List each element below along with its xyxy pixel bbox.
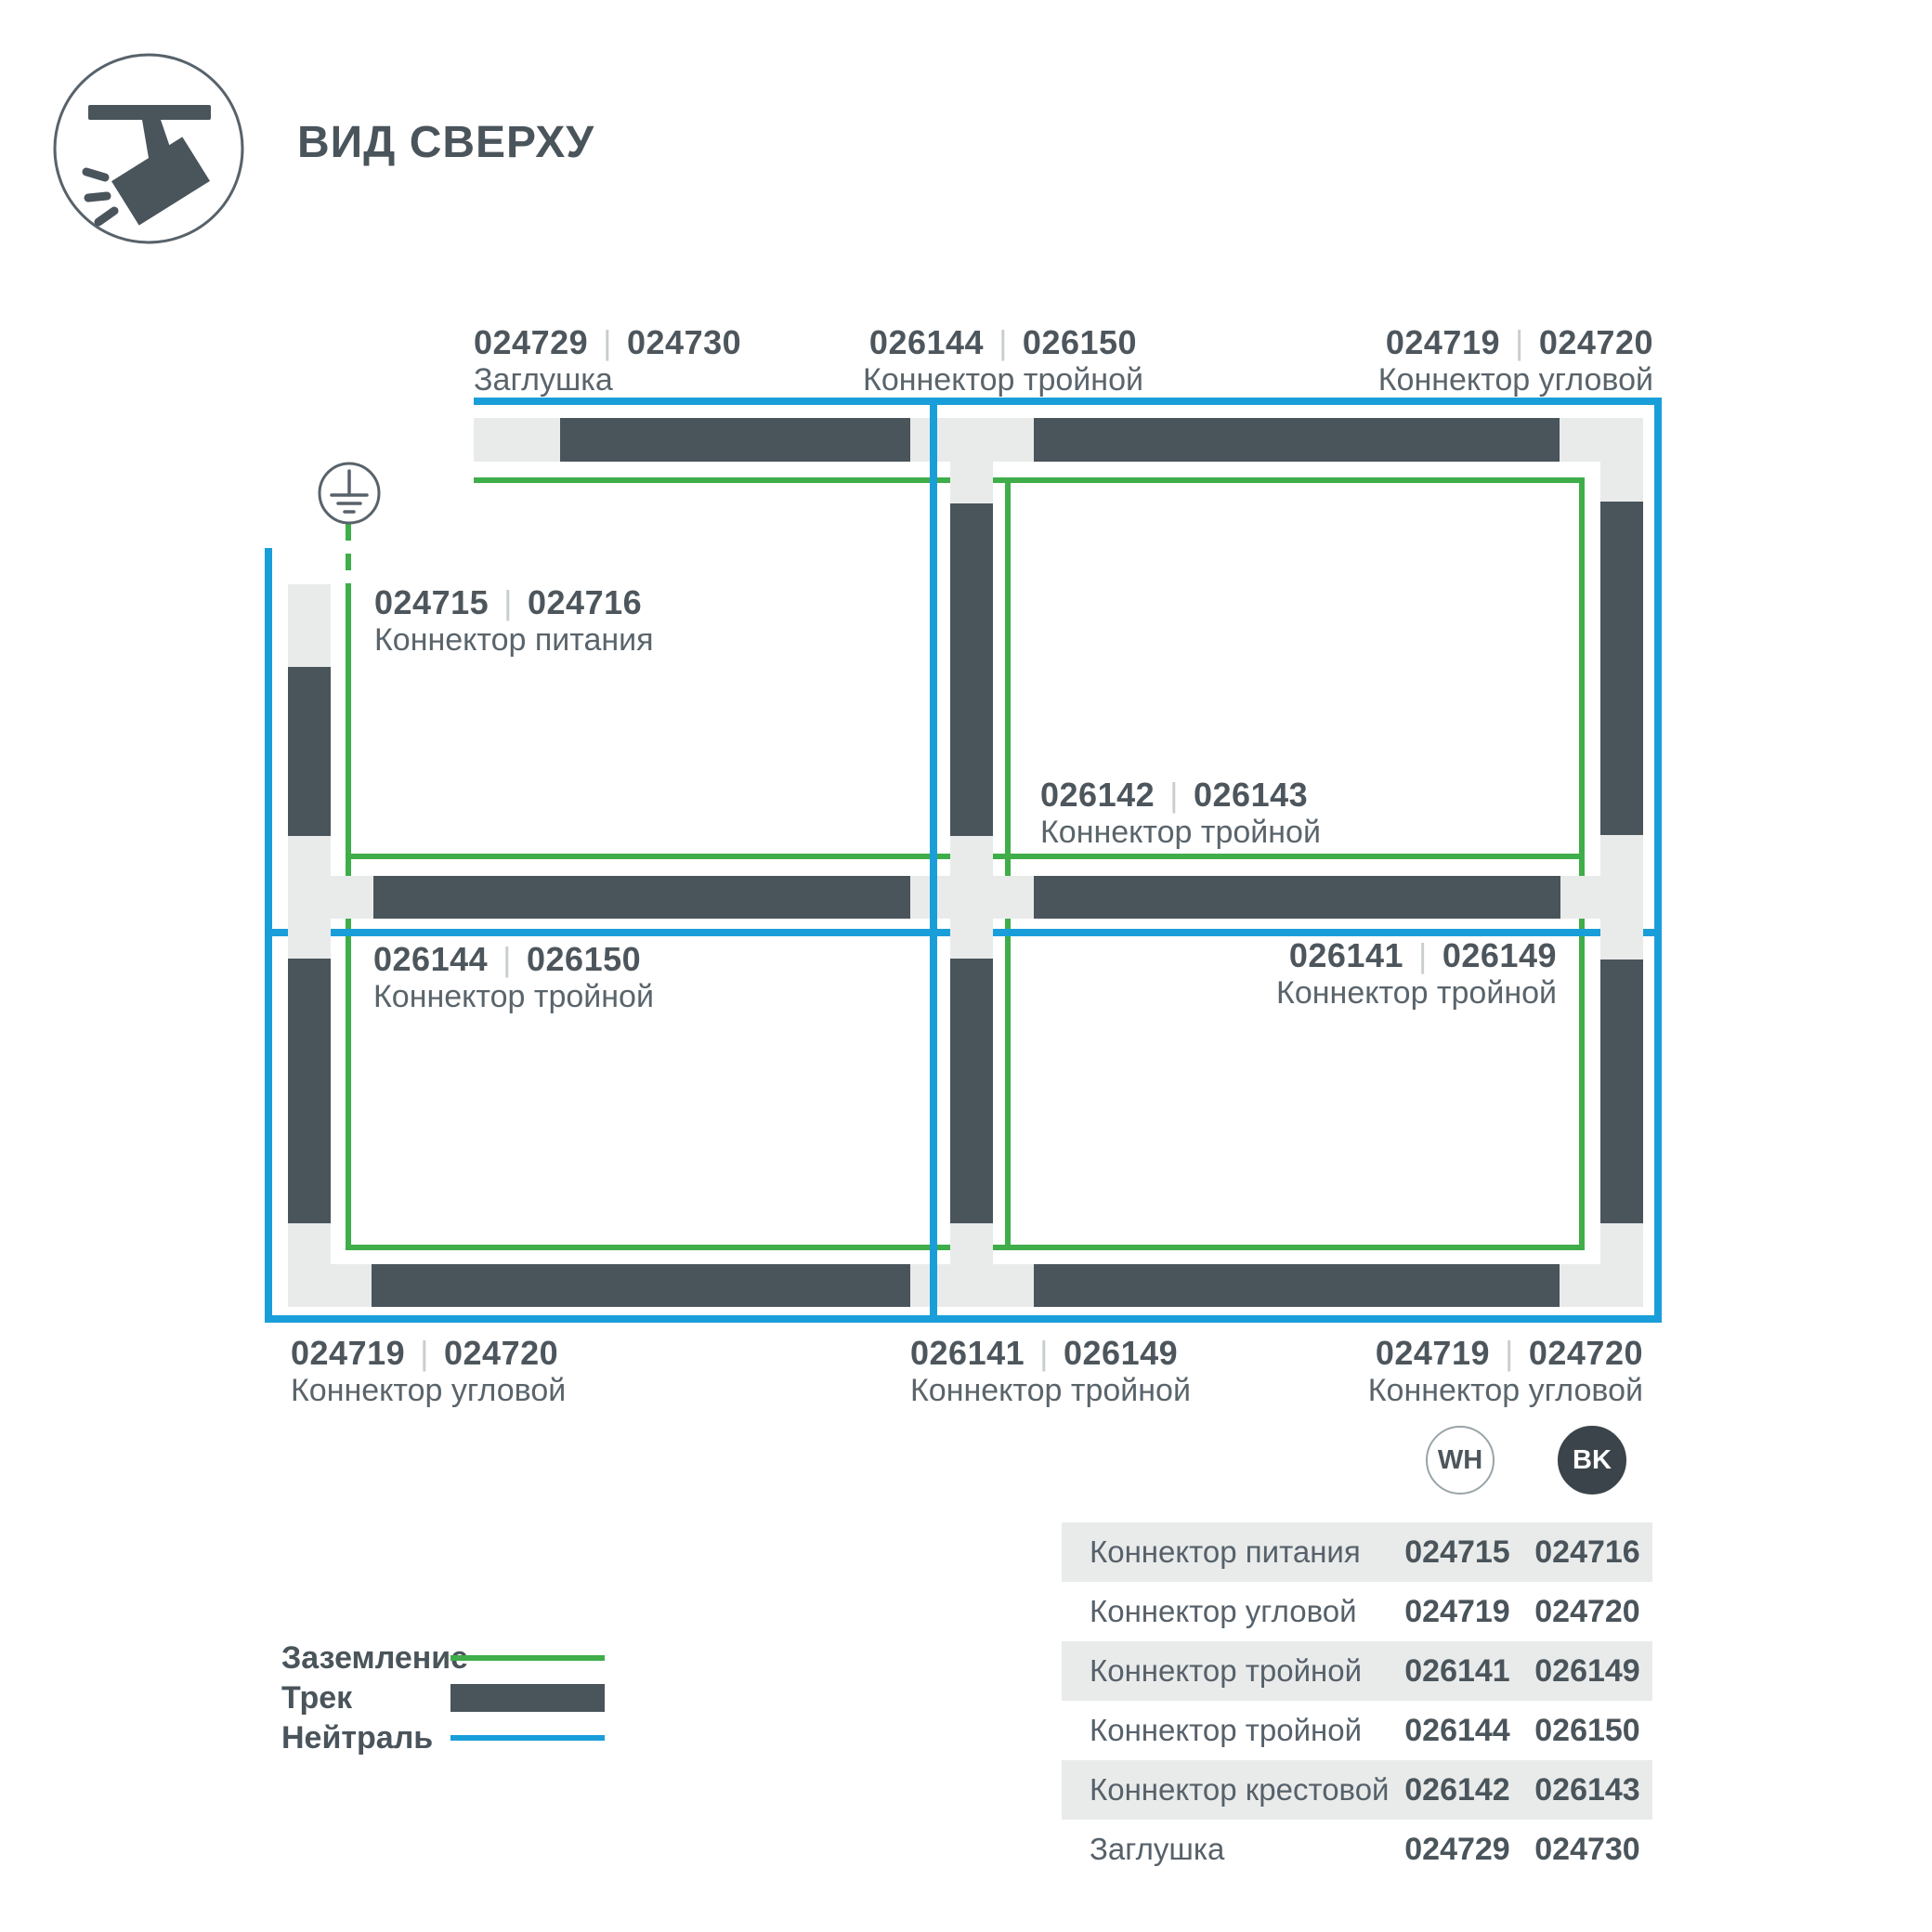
track-segment — [373, 876, 910, 919]
track-segment — [950, 959, 993, 1223]
track-spotlight-icon — [51, 51, 246, 246]
table-row: Коннектор угловой 024719 024720 — [1062, 1582, 1652, 1641]
page-title: ВИД СВЕРХУ — [297, 117, 594, 168]
table-row: Коннектор питания 024715 024716 — [1062, 1522, 1652, 1582]
track-segment — [372, 1264, 910, 1307]
legend-item-neutral: Нейтраль — [281, 1722, 605, 1754]
neutral-line-top — [474, 398, 1662, 405]
label-power-connector: 024715|024716 Коннектор питания — [374, 583, 654, 658]
neutral-line-bottom — [265, 1315, 1662, 1323]
track-segment — [288, 959, 331, 1223]
ground-line-swatch — [450, 1655, 605, 1661]
label-corner-connector-bottom-right: 024719|024720 Коннектор угловой — [1368, 1334, 1643, 1408]
ground-line-dashed-feed — [346, 524, 351, 581]
table-row: Коннектор крестовой 026142 026143 — [1062, 1760, 1652, 1820]
table-row: Коннектор тройной 026141 026149 — [1062, 1641, 1652, 1701]
black-color-chip: BK — [1558, 1426, 1626, 1495]
track-segment — [560, 418, 910, 462]
track-segment — [950, 503, 993, 836]
label-t-connector-top: 026144|026150 Коннектор тройной — [817, 323, 1189, 398]
track-segment — [1034, 876, 1560, 919]
track-segment — [1034, 1264, 1560, 1307]
track-segment — [1600, 502, 1643, 835]
track-swatch — [450, 1684, 605, 1712]
label-corner-connector-top-right: 024719|024720 Коннектор угловой — [1378, 323, 1653, 398]
legend-item-ground: Заземление — [281, 1642, 605, 1674]
ground-line-top — [474, 477, 1585, 483]
track-segment — [1600, 959, 1643, 1223]
neutral-line-left-vertical — [265, 548, 272, 1323]
neutral-line-right-vertical — [1654, 398, 1662, 1323]
neutral-line-swatch — [450, 1735, 605, 1741]
legend: Заземление Трек Нейтраль — [281, 1642, 605, 1762]
neutral-line-center-vertical — [930, 401, 937, 1319]
ground-line-center-vertical — [1005, 480, 1011, 1250]
ground-line-right-vertical — [1579, 480, 1585, 1250]
table-row: Заглушка 024729 024730 — [1062, 1820, 1652, 1879]
legend-item-track: Трек — [281, 1682, 605, 1714]
page: ВИД СВЕРХУ 024729|024730 — [0, 0, 1932, 1932]
track-segment — [1034, 418, 1560, 462]
label-t-connector-mid-right: 026141|026149 Коннектор тройной — [1276, 936, 1557, 1011]
label-t-connector-mid-left: 026144|026150 Коннектор тройной — [373, 940, 654, 1014]
track-segment — [288, 667, 331, 836]
label-end-cap-top: 024729|024730 Заглушка — [474, 323, 741, 398]
parts-table: WH BK Коннектор питания 024715 024716 Ко… — [1062, 1426, 1652, 1879]
earth-ground-icon — [316, 460, 383, 527]
label-cross-connector: 026142|026143 Коннектор тройной — [1040, 776, 1321, 850]
table-row: Коннектор тройной 026144 026150 — [1062, 1701, 1652, 1760]
color-column-header: WH BK — [1062, 1426, 1652, 1522]
label-t-connector-bottom-center: 026141|026149 Коннектор тройной — [910, 1334, 1191, 1408]
label-corner-connector-bottom-left: 024719|024720 Коннектор угловой — [291, 1334, 566, 1408]
white-color-chip: WH — [1426, 1426, 1495, 1495]
